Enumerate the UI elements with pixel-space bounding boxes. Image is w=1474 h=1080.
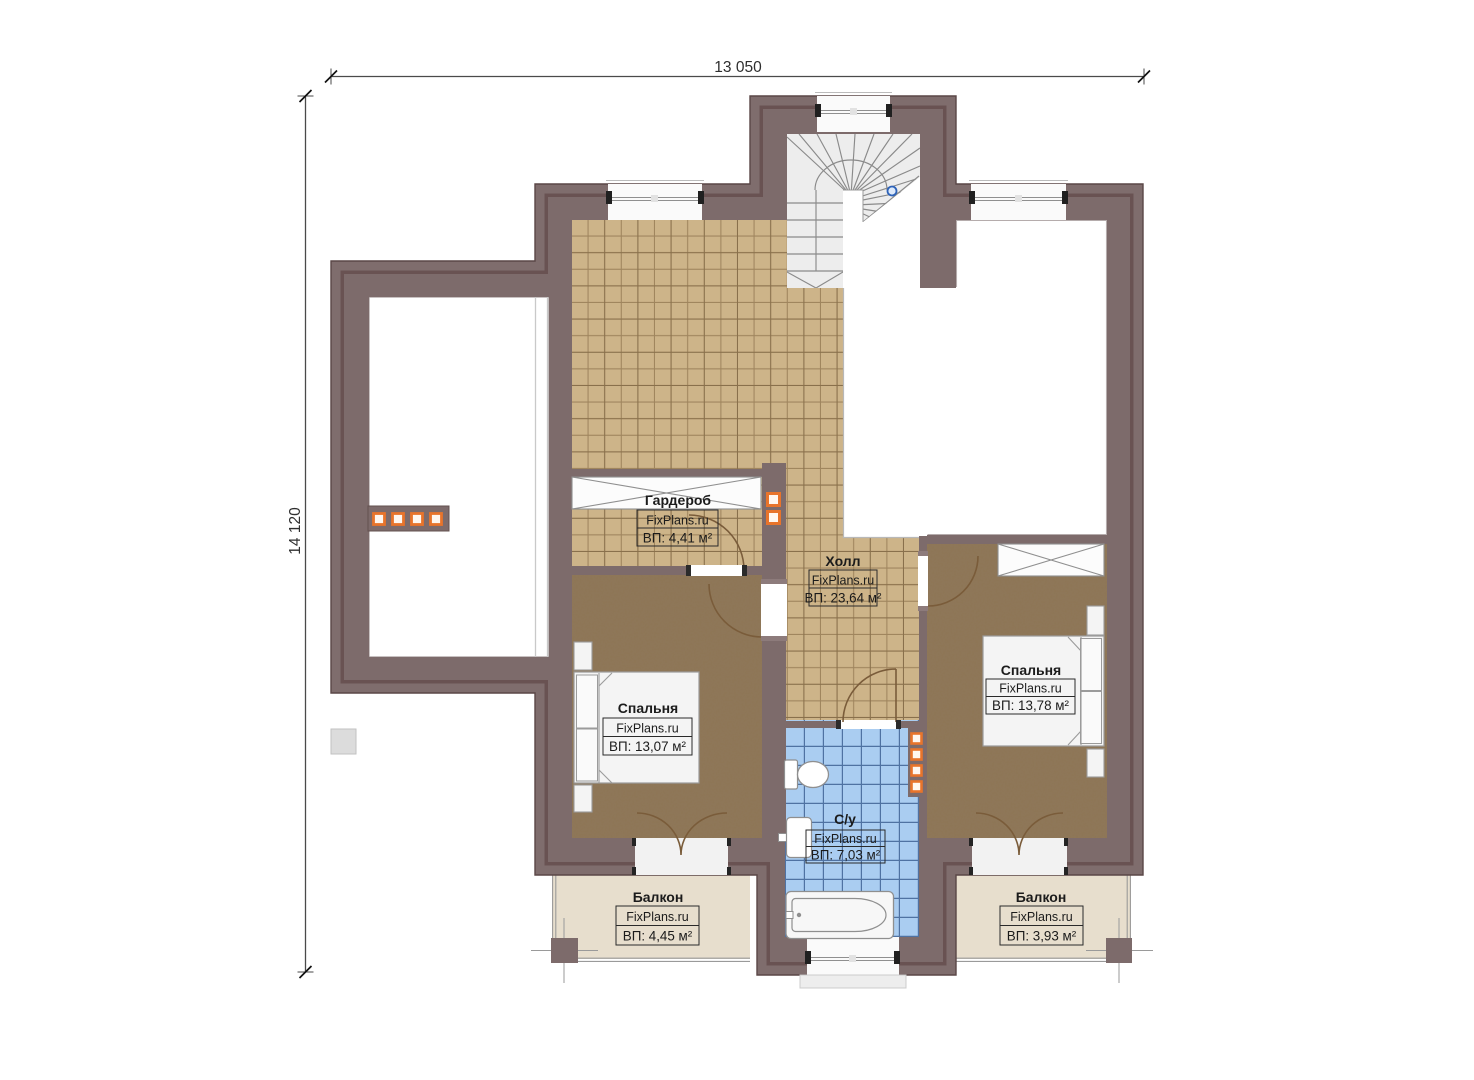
svg-text:14 120: 14 120 — [287, 507, 304, 555]
svg-text:ВП: 4,45 м²: ВП: 4,45 м² — [623, 929, 693, 944]
svg-text:Спальня: Спальня — [1001, 662, 1061, 678]
svg-text:ВП: 13,07 м²: ВП: 13,07 м² — [609, 739, 686, 754]
svg-text:FixPlans.ru: FixPlans.ru — [646, 514, 709, 528]
svg-text:FixPlans.ru: FixPlans.ru — [1010, 910, 1073, 924]
svg-text:FixPlans.ru: FixPlans.ru — [626, 910, 689, 924]
svg-text:Балкон: Балкон — [1016, 889, 1067, 905]
svg-text:ВП: 3,93 м²: ВП: 3,93 м² — [1007, 929, 1077, 944]
svg-text:С/у: С/у — [834, 811, 856, 827]
svg-text:ВП: 13,78 м²: ВП: 13,78 м² — [992, 698, 1069, 713]
svg-text:FixPlans.ru: FixPlans.ru — [814, 832, 877, 846]
svg-text:Спальня: Спальня — [618, 700, 678, 716]
svg-text:FixPlans.ru: FixPlans.ru — [999, 682, 1062, 696]
svg-text:FixPlans.ru: FixPlans.ru — [616, 722, 679, 736]
svg-text:FixPlans.ru: FixPlans.ru — [812, 574, 875, 588]
svg-text:13 050: 13 050 — [714, 59, 762, 76]
svg-text:ВП: 23,64 м²: ВП: 23,64 м² — [805, 591, 882, 606]
svg-text:Балкон: Балкон — [633, 889, 684, 905]
svg-text:Гардероб: Гардероб — [645, 492, 712, 508]
svg-text:ВП: 4,41 м²: ВП: 4,41 м² — [643, 531, 713, 546]
svg-text:ВП: 7,03 м²: ВП: 7,03 м² — [811, 848, 881, 863]
svg-text:Холл: Холл — [825, 553, 860, 569]
